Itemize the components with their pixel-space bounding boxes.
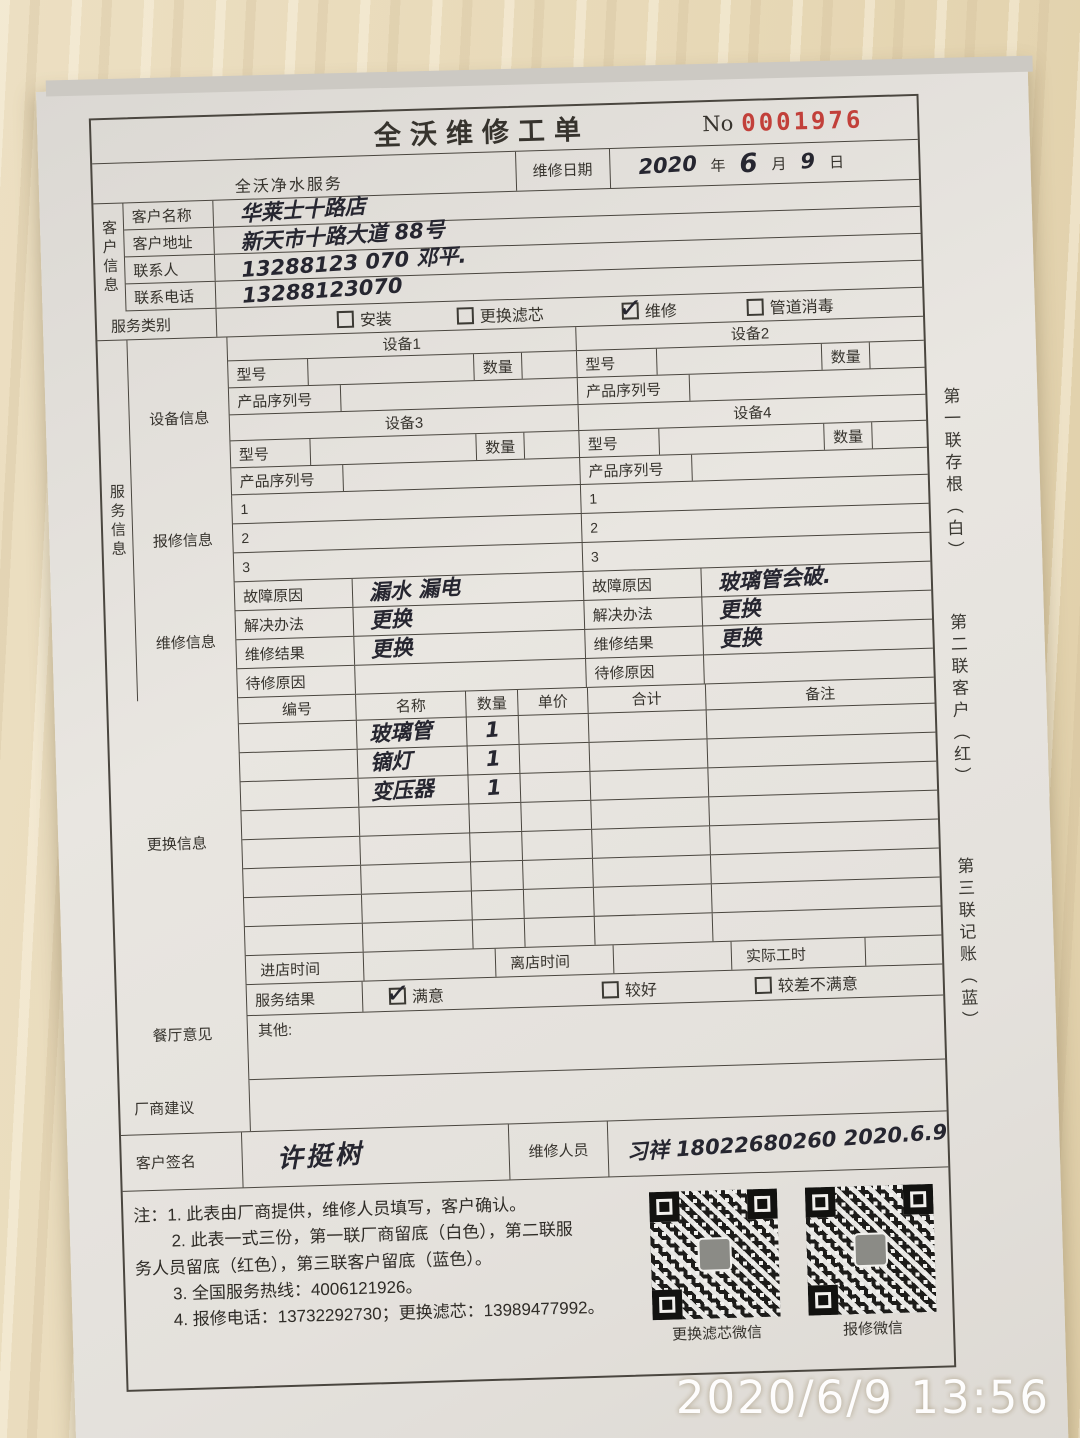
option-satisfied: 满意 [389, 982, 445, 1008]
option-repair: 维修 [621, 297, 677, 323]
qr-code-icon [805, 1184, 937, 1316]
hw-fault-cause-left: 漏水 漏电 [368, 577, 460, 604]
month-suffix: 月 [771, 153, 787, 174]
leave-time-value [614, 942, 733, 973]
hw-result-left: 更换 [370, 637, 413, 661]
camera-timestamp: 2020/6/9 13:56 [676, 1371, 1050, 1424]
serial-number: 0001976 [741, 105, 864, 137]
device-info-block: 设备信息 设备1 设备2 型号 数量 [127, 317, 927, 499]
staff-label: 维修人员 [509, 1121, 610, 1179]
install-checkbox [337, 310, 354, 327]
option-fair: 较好 [602, 976, 658, 1002]
repair-checkbox [622, 302, 639, 319]
device3-qty-value [524, 431, 579, 459]
suggestion-label: 厂商建议 [119, 1080, 250, 1135]
customer-signature-label: 客户签名 [121, 1132, 243, 1191]
qr-code-icon [649, 1189, 781, 1321]
hw-result-right: 更换 [719, 627, 762, 651]
enter-time-value [364, 949, 497, 981]
option-unsatisfied: 较差不满意 [754, 970, 858, 997]
day-suffix: 日 [829, 151, 845, 172]
device2-qty-value [870, 341, 925, 369]
repair-info-label: 维修信息 [135, 582, 238, 701]
footer-row: 注：1. 此表由厂商提供，维修人员填写，客户确认。 2. 此表一式三份，第一联厂… [123, 1167, 955, 1389]
footer-notes: 注：1. 此表由厂商提供，维修人员填写，客户确认。 2. 此表一式三份，第一联厂… [123, 1176, 655, 1390]
pipe-disinfect-checkbox [746, 298, 763, 315]
device4-qty-value [872, 421, 927, 449]
qr-repair-report: 报修微信 [805, 1184, 937, 1341]
device-info-label: 设备信息 [127, 337, 232, 498]
hw-customer-name: 华莱士十路店 [239, 196, 366, 225]
device2-model-value [657, 344, 823, 375]
feedback-label: 餐厅意见 [117, 985, 250, 1084]
paper-sheet: 全沃维修工单 No 0001976 全沃净水服务 维修日期 2020 年 6 月… [36, 63, 1071, 1438]
hw-solution-left: 更换 [369, 608, 412, 632]
hw-customer-signature: 许挺树 [276, 1141, 365, 1173]
qr-logo-icon [853, 1232, 888, 1267]
replacement-info-section: 更换信息 编号 名称 数量 单价 合计 备注 玻璃管 1 [108, 678, 942, 989]
actual-hours-value [865, 936, 942, 966]
hw-month: 6 [739, 150, 759, 177]
customer-section-label: 客户信息 [93, 203, 126, 312]
copy-1-stub-white: 第一联存根（白） [937, 387, 967, 564]
qr-logo-icon [697, 1237, 732, 1272]
device1-qty-value [522, 351, 577, 379]
report-info-label: 报修信息 [132, 495, 235, 585]
year-suffix: 年 [710, 155, 726, 176]
service-info-section: 服务信息 设备信息 设备1 设备2 型号 [97, 317, 933, 702]
hw-year: 2020 [637, 153, 697, 178]
satisfied-checkbox [389, 987, 406, 1004]
photo-background: 全沃维修工单 No 0001976 全沃净水服务 维修日期 2020 年 6 月… [0, 0, 1080, 1438]
serial-block: No 0001976 [702, 96, 918, 145]
copy-2-customer-red: 第二联客户（红） [944, 613, 974, 790]
unsatisfied-checkbox [755, 976, 772, 993]
fair-checkbox [602, 981, 619, 998]
device4-model-value [659, 424, 825, 455]
hw-day: 9 [800, 151, 816, 173]
device1-model-value [308, 354, 475, 385]
repair-work-order-form: 全沃维修工单 No 0001976 全沃净水服务 维修日期 2020 年 6 月… [89, 94, 956, 1392]
repair-date-label: 维修日期 [515, 149, 610, 191]
hw-fault-cause-right: 玻璃管会破. [717, 565, 831, 593]
filter-replace-checkbox [457, 307, 474, 324]
service-result-label: 服务结果 [247, 982, 364, 1015]
hw-solution-right: 更换 [718, 598, 761, 622]
copy-3-accounting-blue: 第三联记账（蓝） [951, 856, 981, 1033]
qr-filter-replace: 更换滤芯微信 [649, 1189, 781, 1346]
title-spacer [91, 115, 262, 163]
replacement-info-label: 更换信息 [108, 698, 246, 989]
hw-staff-signature: 习祥 18022680260 2020.6.9 [626, 1122, 948, 1164]
option-filter-replace: 更换滤芯 [456, 301, 544, 328]
device3-model-value [310, 434, 477, 465]
option-pipe-disinfect: 管道消毒 [746, 292, 834, 319]
no-label: No [702, 111, 734, 136]
service-type-label: 服务类别 [97, 309, 218, 341]
option-install: 安装 [337, 306, 393, 332]
